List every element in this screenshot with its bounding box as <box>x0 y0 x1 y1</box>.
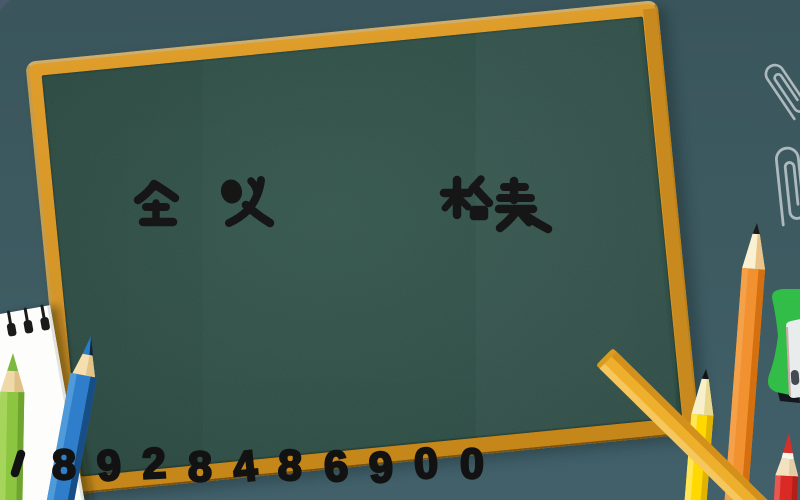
svg-text:9: 9 <box>95 441 123 491</box>
svg-text:8: 8 <box>277 442 303 491</box>
svg-text:8: 8 <box>52 441 76 489</box>
svg-text:0: 0 <box>413 439 439 488</box>
svg-text:8: 8 <box>188 443 212 491</box>
svg-text:9: 9 <box>367 443 394 493</box>
svg-text:4: 4 <box>231 442 260 492</box>
svg-text:6: 6 <box>322 442 349 492</box>
svg-text:0: 0 <box>460 440 484 488</box>
svg-text:2: 2 <box>141 439 167 488</box>
